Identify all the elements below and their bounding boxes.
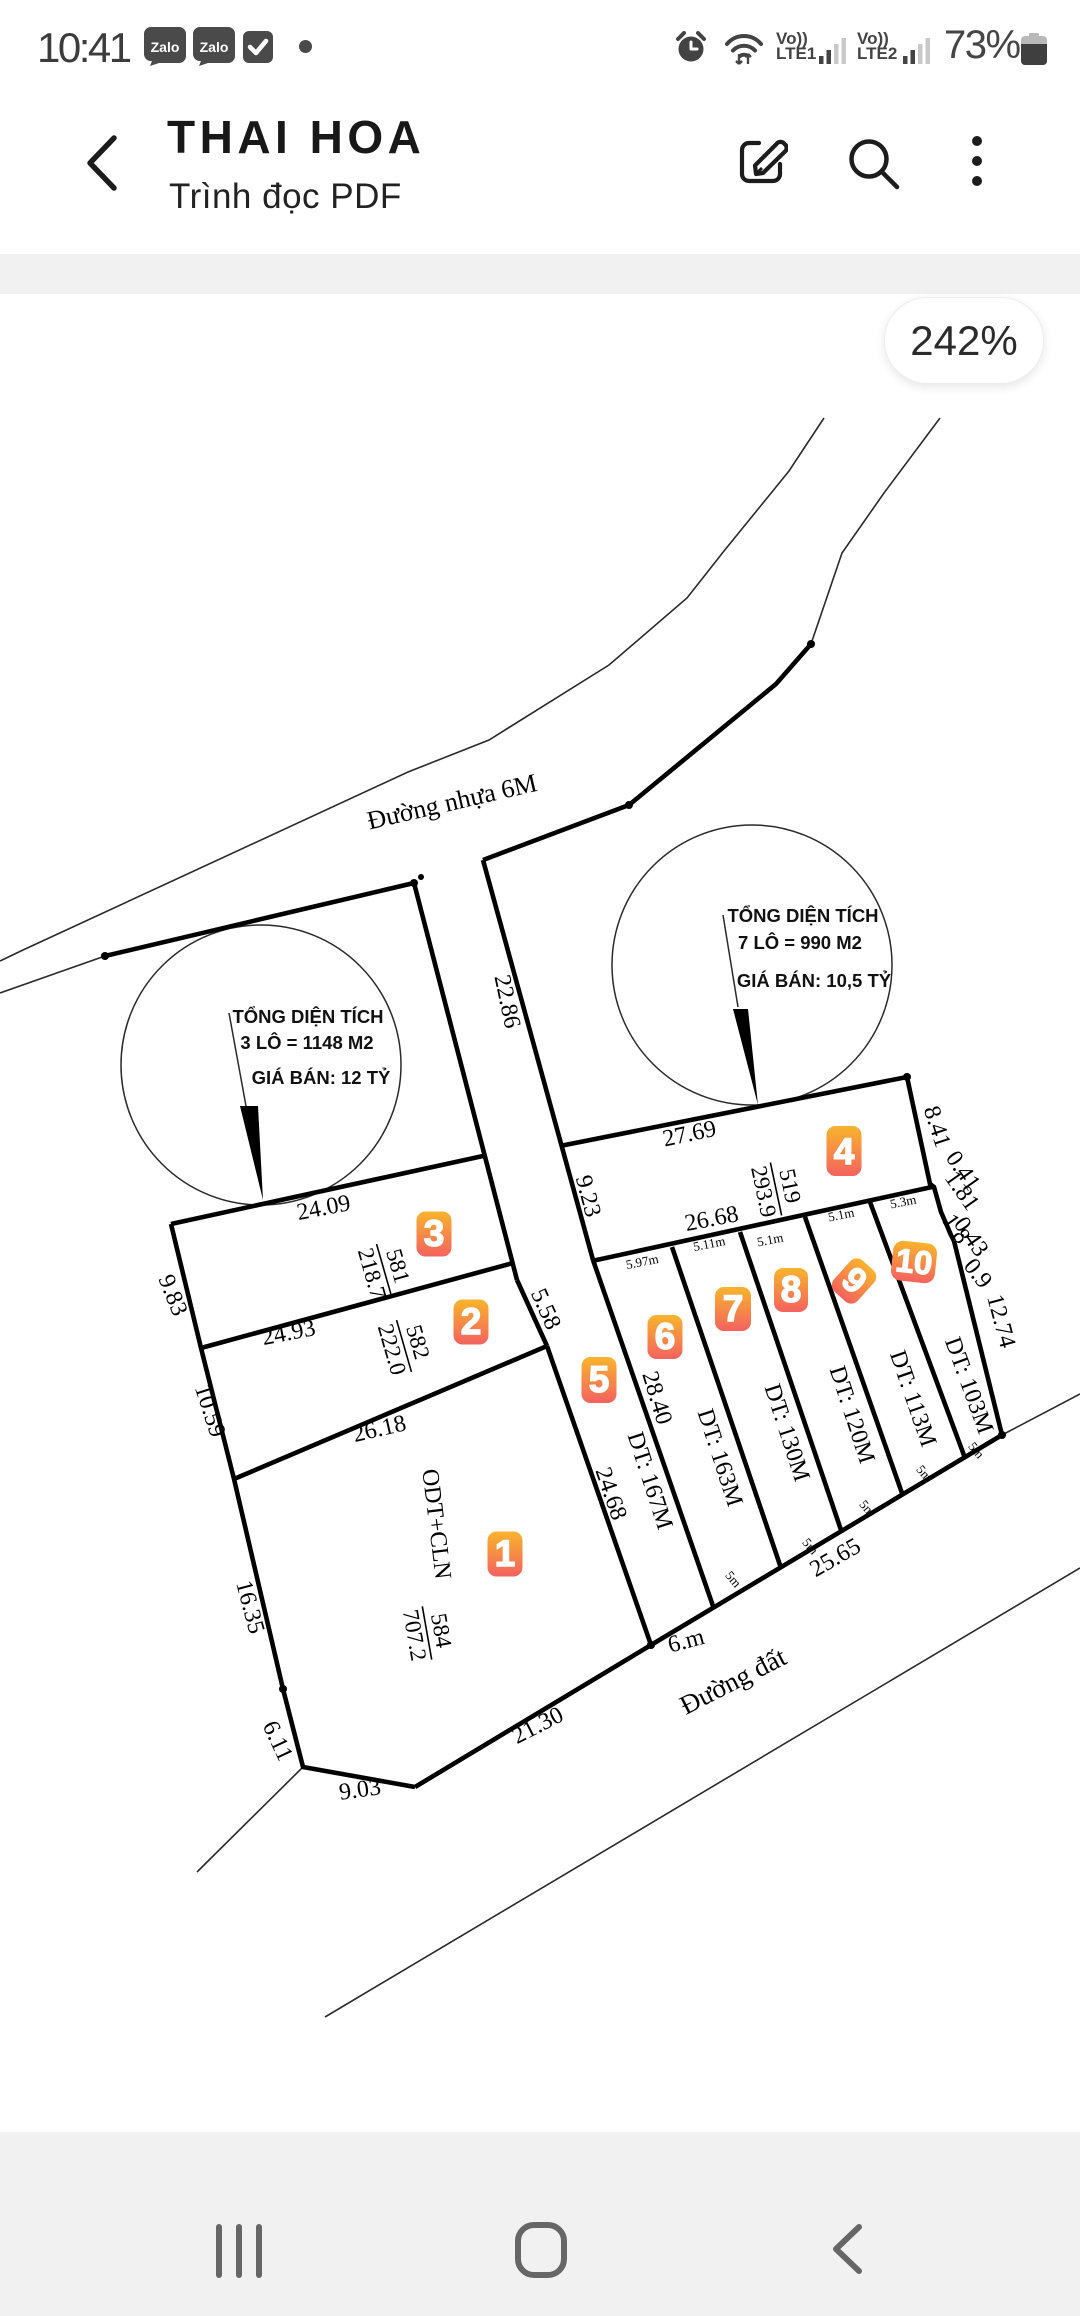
svg-text:2: 2	[461, 1301, 482, 1342]
svg-text:26.18: 26.18	[350, 1410, 408, 1447]
svg-text:3 LÔ = 1148 M2: 3 LÔ = 1148 M2	[240, 1032, 373, 1053]
svg-text:5m: 5m	[913, 1462, 935, 1484]
svg-text:TỔNG DIỆN TÍCH: TỔNG DIỆN TÍCH	[727, 905, 878, 926]
svg-text:Đường nhựa 6M: Đường nhựa 6M	[364, 768, 539, 835]
svg-text:TỔNG DIỆN TÍCH: TỔNG DIỆN TÍCH	[232, 1006, 383, 1027]
svg-text:1: 1	[495, 1533, 516, 1574]
svg-text:10.59: 10.59	[189, 1381, 230, 1440]
svg-text:24.93: 24.93	[260, 1315, 318, 1351]
svg-text:5m: 5m	[856, 1497, 878, 1519]
svg-text:7: 7	[723, 1288, 744, 1329]
svg-text:22.86: 22.86	[489, 972, 526, 1030]
svg-text:DT: 163M: DT: 163M	[692, 1406, 748, 1510]
svg-text:24.68: 24.68	[590, 1464, 632, 1524]
svg-text:7 LÔ = 990 M2: 7 LÔ = 990 M2	[738, 932, 862, 953]
svg-text:9.03: 9.03	[337, 1774, 382, 1806]
svg-text:5m: 5m	[722, 1568, 744, 1590]
svg-text:DT: 120M: DT: 120M	[824, 1363, 880, 1467]
svg-text:Đường đất: Đường đất	[675, 1641, 792, 1720]
svg-text:ODT+CLN: ODT+CLN	[416, 1468, 455, 1581]
svg-text:6.m: 6.m	[665, 1624, 707, 1659]
svg-text:9.23: 9.23	[570, 1173, 606, 1220]
svg-text:12.74: 12.74	[981, 1292, 1020, 1351]
svg-text:6: 6	[655, 1316, 676, 1357]
svg-text:16.35: 16.35	[230, 1578, 269, 1637]
svg-text:3: 3	[424, 1213, 445, 1254]
svg-text:5.1m: 5.1m	[756, 1230, 785, 1250]
svg-text:27.69: 27.69	[660, 1116, 718, 1153]
svg-text:584: 584	[426, 1611, 457, 1650]
svg-text:8: 8	[781, 1269, 802, 1310]
svg-text:DT: 113M: DT: 113M	[884, 1347, 941, 1450]
svg-text:5: 5	[589, 1359, 610, 1400]
svg-text:4: 4	[834, 1131, 855, 1172]
svg-text:GIÁ BÁN: 12 TỶ: GIÁ BÁN: 12 TỶ	[252, 1067, 391, 1088]
svg-text:5m: 5m	[965, 1439, 987, 1461]
svg-text:GIÁ BÁN: 10,5 TỶ: GIÁ BÁN: 10,5 TỶ	[737, 970, 892, 991]
svg-text:21.30: 21.30	[508, 1702, 568, 1750]
svg-text:10: 10	[894, 1241, 934, 1282]
